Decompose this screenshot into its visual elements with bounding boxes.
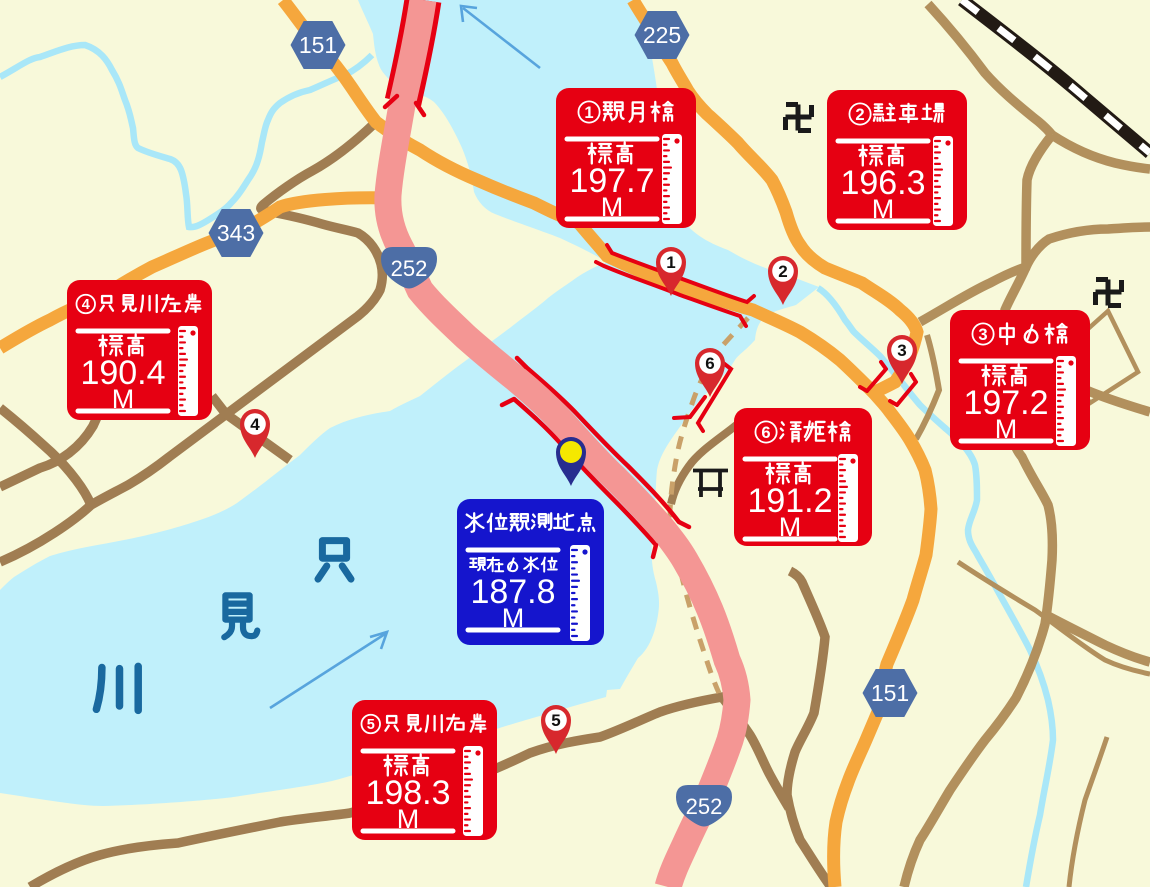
svg-text:5: 5 bbox=[551, 711, 560, 730]
svg-text:3: 3 bbox=[897, 341, 906, 360]
svg-text:151: 151 bbox=[871, 680, 909, 706]
svg-text:6: 6 bbox=[705, 354, 714, 373]
svg-text:252: 252 bbox=[391, 256, 428, 281]
svg-text:4: 4 bbox=[250, 415, 260, 434]
svg-text:343: 343 bbox=[217, 220, 255, 246]
svg-text:2: 2 bbox=[778, 262, 787, 281]
svg-text:151: 151 bbox=[299, 32, 337, 58]
svg-text:1: 1 bbox=[666, 253, 675, 272]
svg-text:252: 252 bbox=[686, 794, 723, 819]
svg-text:1: 1 bbox=[584, 103, 593, 122]
svg-text:6: 6 bbox=[761, 423, 770, 442]
svg-text:5: 5 bbox=[367, 717, 375, 733]
svg-text:3: 3 bbox=[978, 325, 987, 344]
svg-text:2: 2 bbox=[855, 105, 864, 124]
svg-text:4: 4 bbox=[82, 297, 90, 313]
svg-text:225: 225 bbox=[643, 22, 681, 48]
